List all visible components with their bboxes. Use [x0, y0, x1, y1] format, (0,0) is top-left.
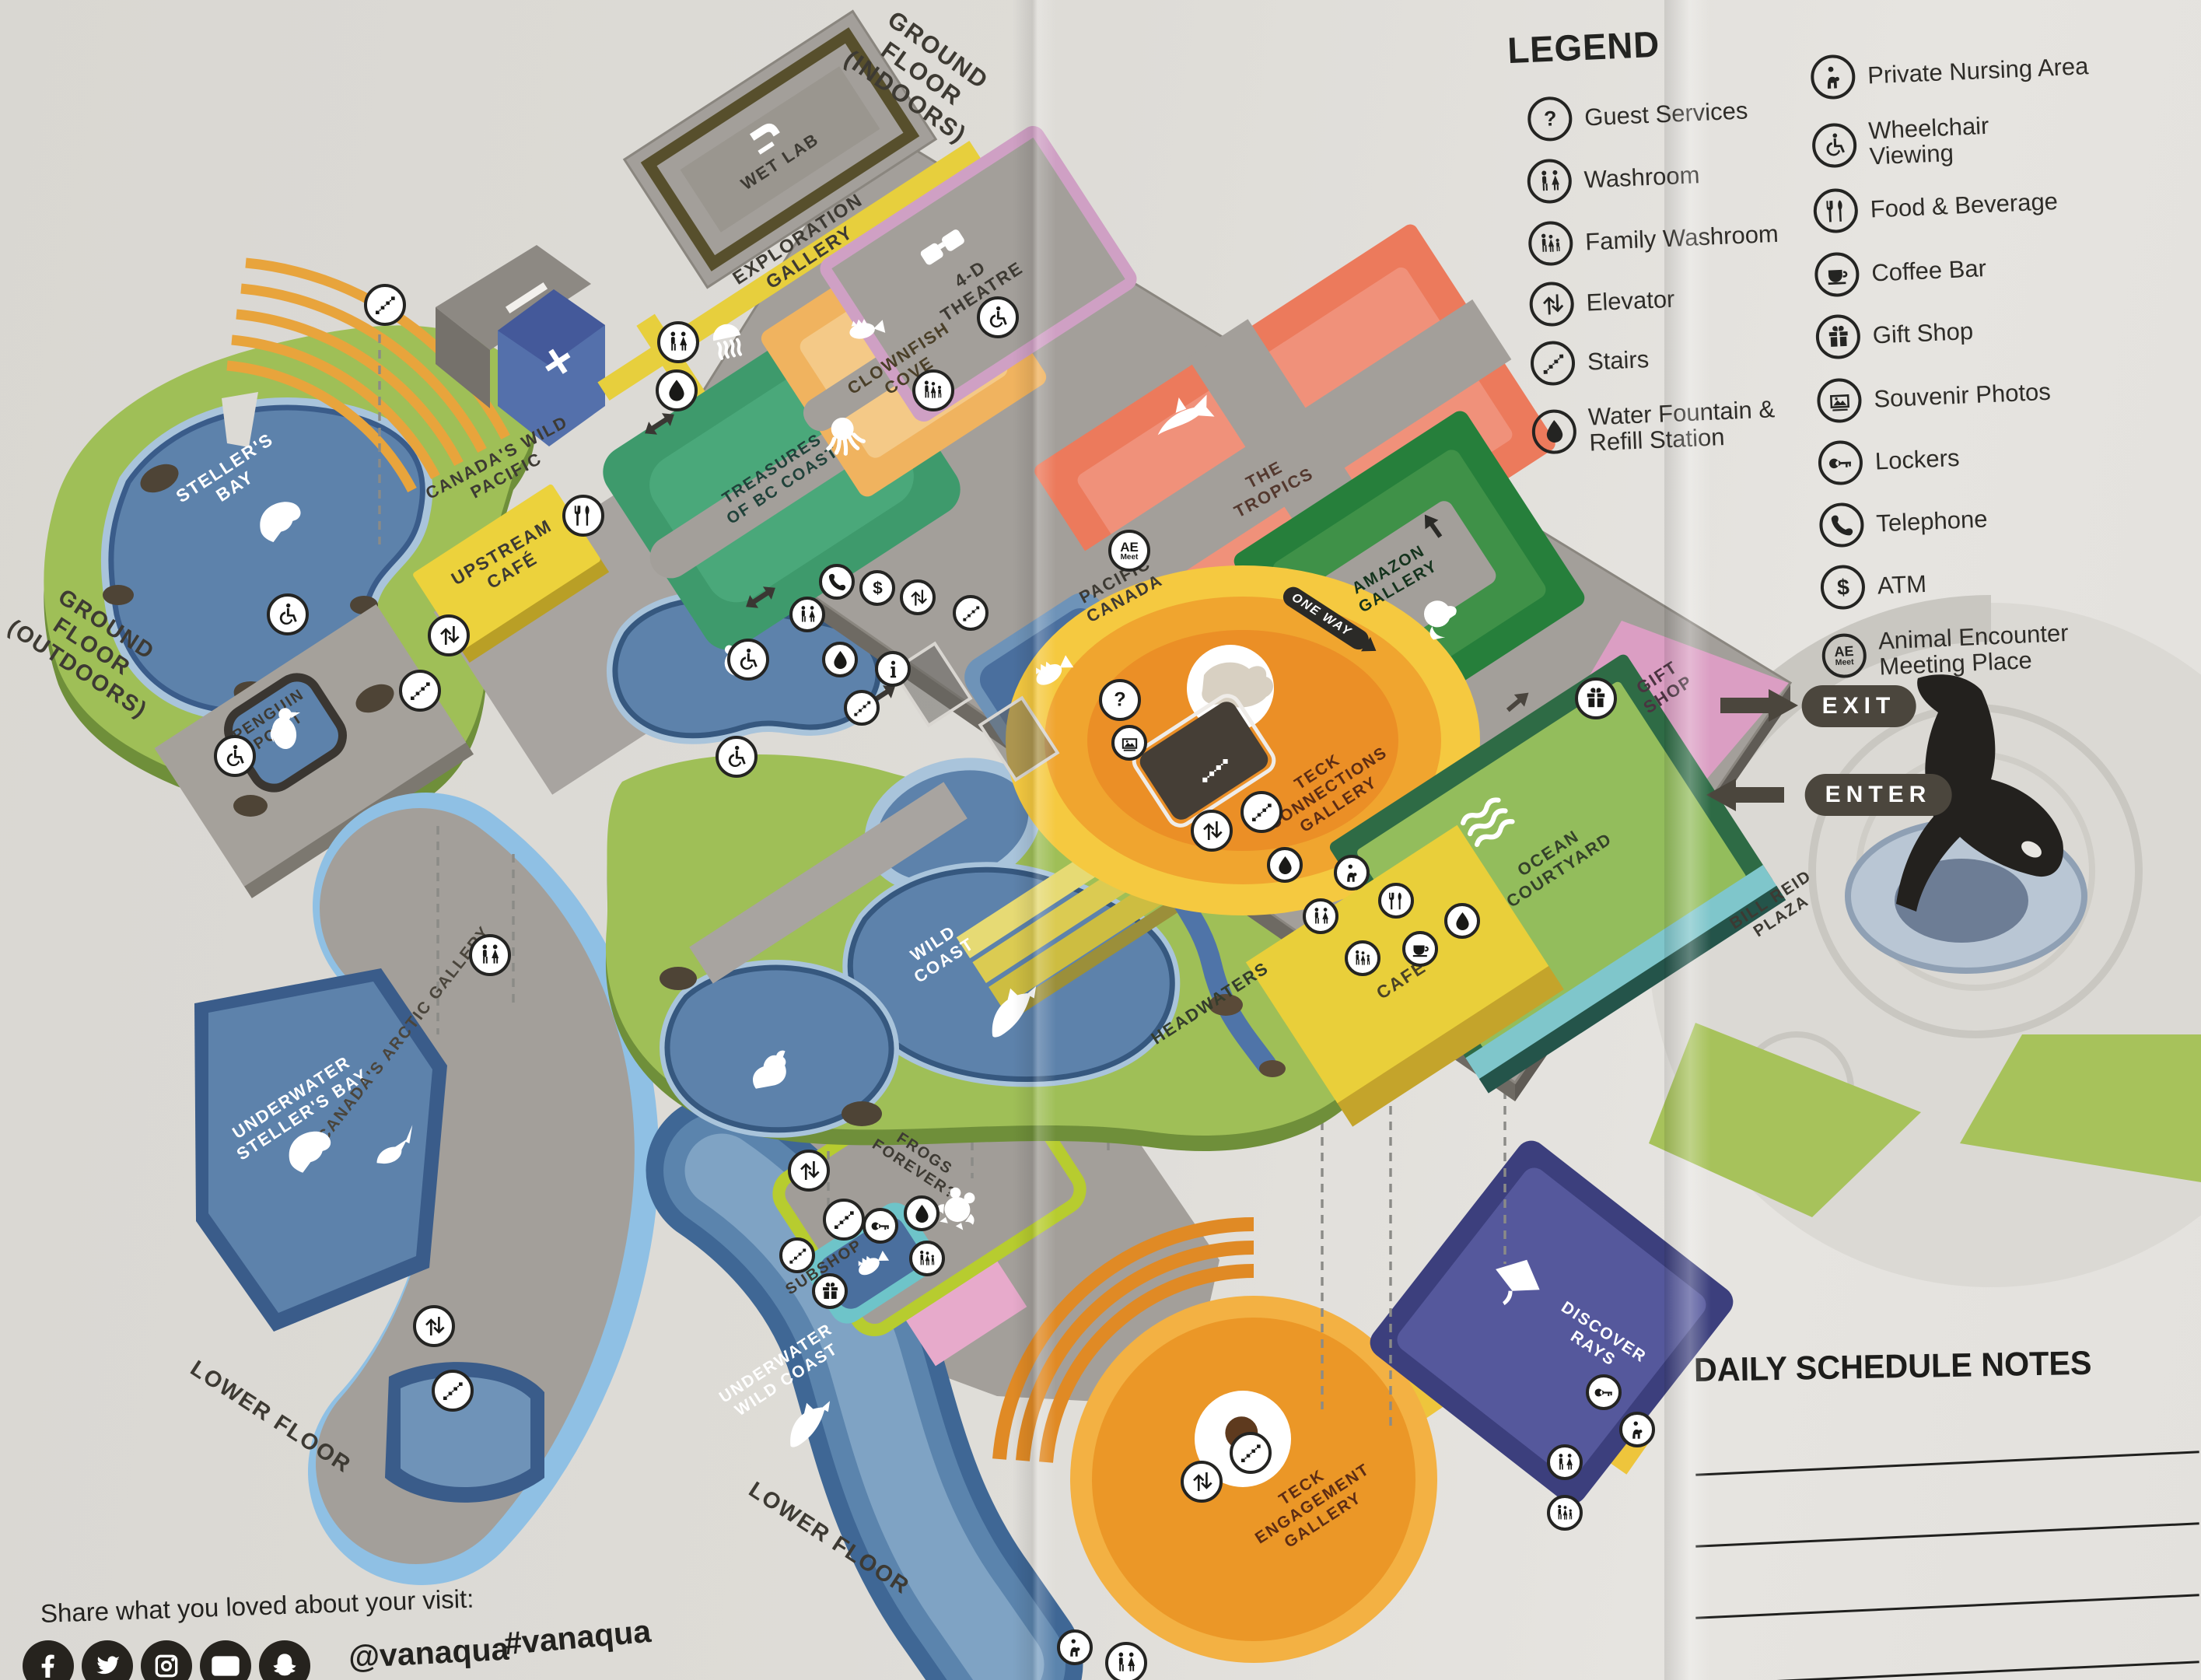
elevator-icon	[1528, 281, 1574, 327]
stairs-marker-icon	[844, 690, 880, 726]
legend-row: ATM	[1820, 562, 1927, 611]
stairs-marker-icon	[1240, 791, 1282, 833]
exit-label: EXIT	[1822, 693, 1896, 719]
octopus-icon	[815, 407, 873, 464]
elevator-marker-icon	[413, 1305, 455, 1347]
washroom-marker-icon	[1547, 1444, 1583, 1480]
souvenir-photos-marker-icon	[1111, 725, 1147, 761]
telephone-icon	[1818, 502, 1864, 548]
water-fountain-marker-icon	[1267, 847, 1303, 883]
jellyfish-icon	[701, 313, 754, 366]
wheelchair-marker-icon	[716, 736, 758, 778]
stairs-marker-icon	[432, 1370, 474, 1412]
stairs-marker-icon	[364, 284, 406, 326]
stairs-marker-icon	[779, 1237, 815, 1273]
legend-label: Family Washroom	[1585, 221, 1779, 255]
atm-icon	[1820, 564, 1866, 610]
washroom-marker-icon	[657, 321, 699, 363]
washroom-marker-icon	[1303, 898, 1338, 934]
private-nursing-marker-icon	[1619, 1412, 1655, 1447]
narwhal-icon	[362, 1119, 423, 1180]
family-washroom-marker-icon	[912, 369, 954, 411]
info-marker-icon	[875, 651, 911, 687]
stairs-marker-icon	[953, 595, 989, 631]
food-beverage-marker-icon	[1378, 883, 1414, 919]
water-fountain-marker-icon	[904, 1195, 940, 1231]
legend-label: Wheelchair Viewing	[1868, 110, 2034, 170]
coffee-bar-icon	[1814, 251, 1860, 297]
private-nursing-marker-icon	[1334, 855, 1370, 891]
lockers-marker-icon	[863, 1208, 898, 1244]
animal-encounter-marker-icon: AEMeet	[1108, 530, 1150, 572]
legend-row: Stairs	[1530, 337, 1650, 387]
legend-label: Animal Encounter Meeting Place	[1877, 618, 2113, 681]
elevator-marker-icon	[1181, 1461, 1223, 1503]
stairs-marker-icon	[1230, 1432, 1272, 1474]
enter-badge: ENTER	[1805, 774, 1952, 816]
gift-shop-marker-icon	[812, 1273, 848, 1309]
legend-label: Washroom	[1583, 162, 1700, 193]
family-washroom-marker-icon	[909, 1241, 945, 1276]
lockers-icon	[1818, 439, 1863, 485]
sea-lion-icon	[273, 1113, 347, 1187]
guest-services-marker-icon	[1099, 679, 1141, 721]
private-nursing-marker-icon	[1057, 1629, 1093, 1665]
food-beverage-marker-icon	[562, 495, 604, 537]
water-fountain-marker-icon	[1444, 903, 1480, 939]
lockers-marker-icon	[1586, 1374, 1622, 1410]
washroom-marker-icon	[1105, 1642, 1147, 1680]
family-washroom-marker-icon	[1345, 940, 1380, 976]
elevator-marker-icon	[900, 579, 936, 615]
exit-arrow	[1720, 698, 1769, 713]
dolphin-icon	[772, 1390, 842, 1460]
wheelchair-viewing-icon	[1811, 122, 1857, 168]
enter-arrow	[1736, 787, 1784, 803]
wheelchair-marker-icon	[977, 296, 1019, 338]
gift-shop-marker-icon	[1575, 677, 1617, 719]
ae-bottom: Meet	[1121, 554, 1139, 562]
food-beverage-icon	[1813, 187, 1859, 233]
washroom-marker-icon	[469, 934, 511, 976]
guest-services-icon	[1527, 96, 1573, 142]
enter-label: ENTER	[1825, 782, 1932, 807]
legend-row: Elevator	[1528, 277, 1675, 327]
legend-label: Coffee Bar	[1871, 255, 1987, 286]
legend-row: Telephone	[1818, 496, 1988, 548]
penguin-icon	[257, 701, 314, 758]
legend-label: Guest Services	[1584, 97, 1748, 131]
legend-label: Elevator	[1586, 285, 1675, 315]
elevator-marker-icon	[788, 1150, 830, 1192]
telephone-marker-icon	[819, 564, 855, 600]
water-fountain-icon	[1531, 408, 1577, 454]
ae-top: AE	[1120, 541, 1139, 554]
legend-label: Souvenir Photos	[1874, 378, 2052, 411]
clownfish-icon	[838, 300, 893, 355]
animal-encounter-icon: AEMeet	[1821, 632, 1867, 678]
legend-label: Lockers	[1874, 445, 1960, 474]
wheelchair-marker-icon	[214, 735, 256, 777]
atm-marker-icon	[859, 570, 895, 606]
legend-row: Gift Shop	[1815, 309, 1975, 360]
legend-label: Water Fountain & Refill Station	[1587, 396, 1784, 457]
water-fountain-marker-icon	[822, 642, 858, 677]
washroom-icon	[1527, 158, 1573, 204]
seal-icon	[736, 1033, 804, 1101]
ae-bottom: Meet	[1835, 658, 1853, 667]
legend-label: ATM	[1877, 571, 1927, 599]
legend-label: Food & Beverage	[1870, 188, 2058, 222]
stairs-icon	[1530, 340, 1576, 386]
legend-row: Washroom	[1527, 152, 1701, 205]
private-nursing-icon	[1810, 54, 1856, 100]
wheelchair-marker-icon	[267, 593, 309, 635]
coffee-bar-marker-icon	[1402, 931, 1438, 967]
family-washroom-icon	[1527, 220, 1573, 266]
legend-label: Gift Shop	[1872, 318, 1974, 348]
elevator-marker-icon	[1191, 810, 1233, 852]
notes-title: DAILY SCHEDULE NOTES	[1694, 1345, 2092, 1390]
wheelchair-marker-icon	[727, 639, 769, 681]
gift-shop-icon	[1815, 313, 1861, 359]
souvenir-photos-icon	[1816, 377, 1862, 423]
dolphin-icon	[972, 974, 1050, 1052]
parrot-icon	[1411, 589, 1470, 648]
legend-label: Stairs	[1587, 346, 1650, 375]
elevator-marker-icon	[428, 614, 470, 656]
legend-row: Coffee Bar	[1814, 246, 1987, 298]
legend-label: Telephone	[1876, 506, 1988, 537]
sea-lion-icon	[244, 484, 317, 556]
legend-label: Private Nursing Area	[1867, 53, 2090, 89]
stairs-marker-icon	[399, 670, 441, 712]
exit-badge: EXIT	[1802, 685, 1916, 727]
stairs-marker-icon	[823, 1199, 865, 1241]
legend-row: Lockers	[1818, 436, 1961, 486]
family-washroom-marker-icon	[1547, 1495, 1583, 1531]
water-fountain-marker-icon	[656, 369, 698, 411]
washroom-marker-icon	[789, 597, 825, 632]
aquarium-map-brochure: ? $	[0, 0, 2201, 1680]
